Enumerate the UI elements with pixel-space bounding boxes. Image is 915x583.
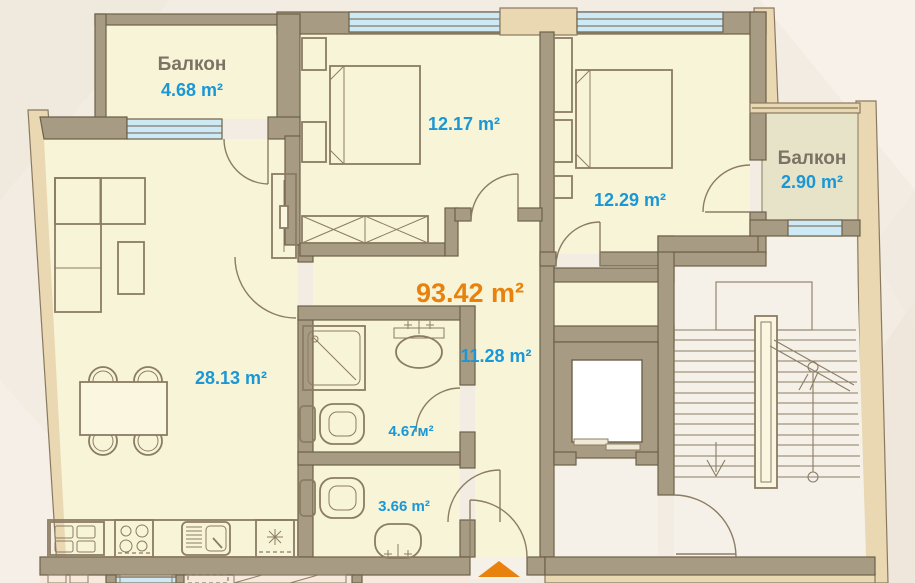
living-room-floor — [44, 139, 298, 557]
wall-segment — [40, 557, 470, 575]
wall-segment — [455, 208, 471, 221]
dining-table — [80, 382, 167, 435]
wall-segment — [600, 252, 766, 266]
wall-pier — [500, 8, 577, 35]
wall-segment — [460, 520, 475, 557]
wc-area: 3.66 m² — [378, 498, 430, 515]
stairwell-window — [788, 220, 842, 236]
floor-plan: Балкон 4.68 m² 12.17 m² 12.29 m² Балкон … — [0, 0, 915, 583]
wall-segment — [518, 208, 542, 221]
wall-segment — [95, 14, 106, 120]
balcony-right-area: 2.90 m² — [781, 172, 843, 192]
bedroom-1-window — [349, 12, 500, 32]
wall-segment — [636, 452, 658, 465]
wall-segment — [658, 236, 674, 495]
neighbor-unit-floor — [40, 575, 470, 583]
wall-segment — [545, 557, 875, 575]
wall-segment — [527, 557, 545, 575]
wall-segment — [658, 236, 758, 252]
wall-segment — [750, 12, 766, 160]
total-area-label: 93.42 m² — [416, 278, 524, 308]
balcony-right-name: Балкон — [778, 148, 847, 169]
neighbor-wall-stub — [352, 575, 362, 583]
wall-segment — [298, 452, 460, 465]
bedroom-2-window — [577, 12, 723, 32]
tv-stand-handle — [280, 206, 288, 228]
wall-segment — [540, 32, 554, 557]
wall-segment — [298, 306, 475, 320]
wall-segment — [554, 268, 674, 282]
bathroom-area: 4.67м² — [388, 423, 433, 440]
wall-segment — [554, 452, 576, 465]
wall-segment — [554, 326, 674, 342]
wall-segment — [300, 243, 445, 256]
elevator — [572, 360, 642, 450]
balcony-left-area: 4.68 m² — [161, 80, 223, 100]
bedroom-1-area: 12.17 m² — [428, 114, 500, 134]
neighbor-window — [112, 577, 180, 583]
elevator-cabin — [572, 360, 642, 442]
wall-segment — [95, 14, 287, 25]
bedroom-2-area: 12.29 m² — [594, 190, 666, 210]
neighbor-wall-stub — [176, 575, 184, 583]
niche-floor — [554, 282, 658, 326]
neighbor-wall-stub — [106, 575, 116, 583]
living-room-area: 28.13 m² — [195, 368, 267, 388]
hallway-area: 11.28 m² — [460, 346, 531, 366]
elevator-door-panel — [606, 444, 640, 450]
asterisk-icon — [267, 529, 283, 545]
floor-plan-drawing: Балкон 4.68 m² 12.17 m² 12.29 m² Балкон … — [0, 0, 915, 583]
wall-segment — [460, 432, 475, 468]
wall-segment — [540, 252, 556, 266]
living-room-window — [127, 119, 222, 139]
landing-floor — [554, 458, 658, 557]
stair-stringer — [755, 316, 777, 488]
hallway-floor-entry — [475, 306, 540, 559]
balcony-left-name: Балкон — [158, 54, 227, 75]
wall-segment — [40, 117, 127, 139]
bedroom-2-floor — [554, 32, 750, 254]
elevator-door-panel — [574, 439, 608, 445]
